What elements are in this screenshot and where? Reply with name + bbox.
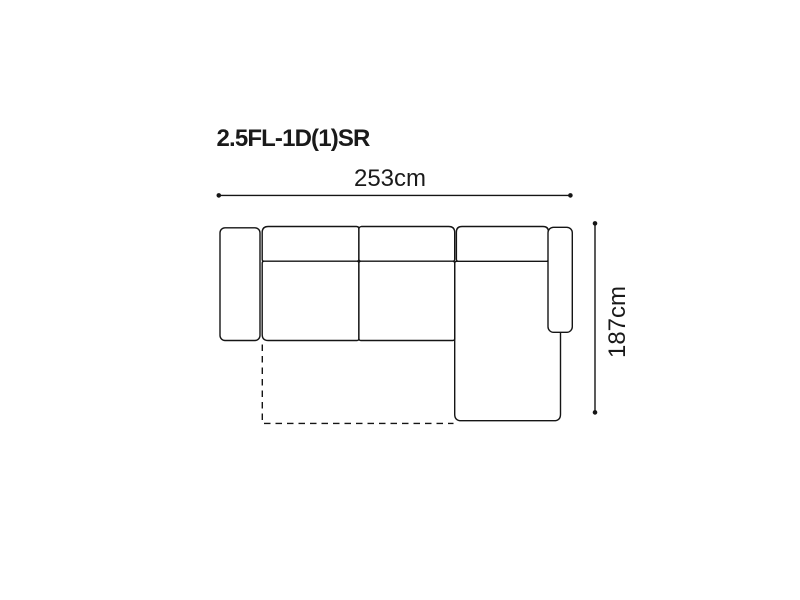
svg-text:2.5FL-1D(1)SR: 2.5FL-1D(1)SR xyxy=(217,125,370,152)
svg-text:187cm: 187cm xyxy=(604,286,631,358)
svg-text:253cm: 253cm xyxy=(354,165,426,192)
